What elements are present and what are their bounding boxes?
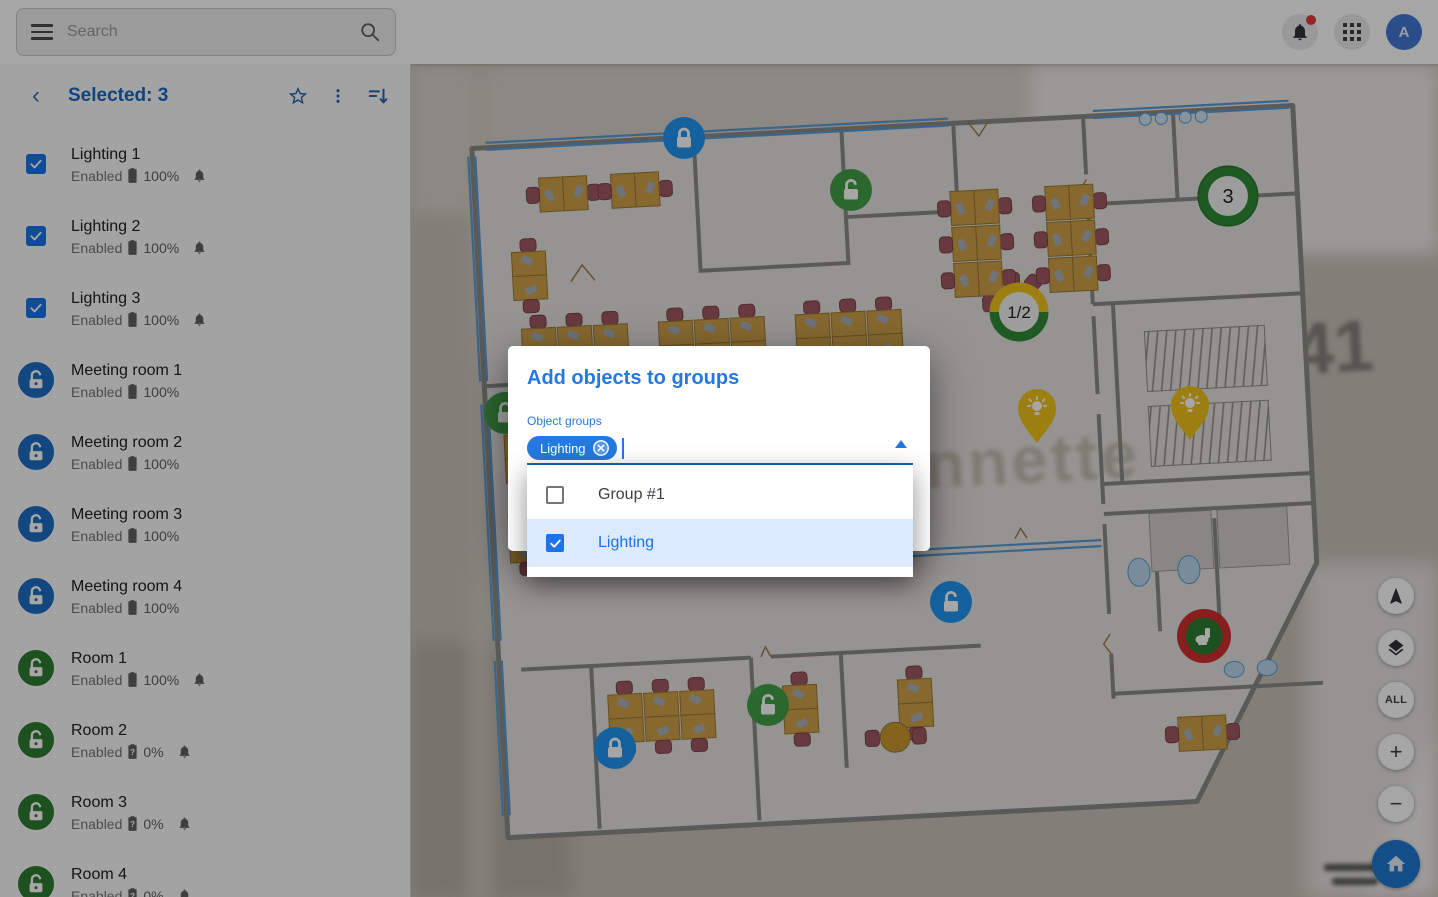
groups-dropdown: Group #1 Lighting xyxy=(527,465,913,577)
option-checkbox[interactable] xyxy=(546,534,564,552)
text-cursor xyxy=(622,438,624,459)
app-root: 41 onnette xyxy=(0,0,1438,897)
option-label: Group #1 xyxy=(598,486,665,504)
dropdown-option[interactable]: Lighting xyxy=(527,519,913,567)
object-groups-label: Object groups xyxy=(527,414,913,428)
dialog-title: Add objects to groups xyxy=(527,367,913,390)
dropdown-collapse-arrow[interactable] xyxy=(894,436,908,454)
group-chip[interactable]: Lighting xyxy=(527,436,617,460)
chip-remove-icon[interactable] xyxy=(592,439,610,457)
option-label: Lighting xyxy=(598,534,654,552)
chip-label: Lighting xyxy=(540,441,586,456)
option-checkbox[interactable] xyxy=(546,486,564,504)
dropdown-option[interactable]: Group #1 xyxy=(527,471,913,519)
